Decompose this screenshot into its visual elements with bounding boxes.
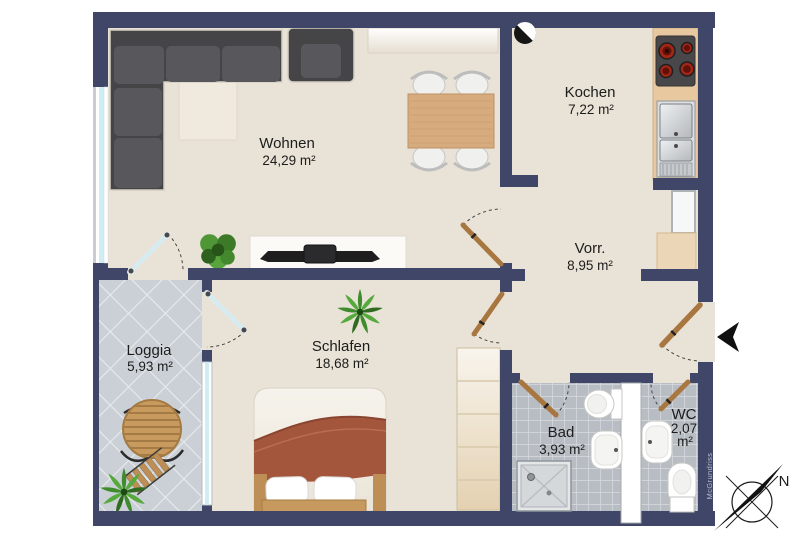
entrance-threshold <box>698 302 715 362</box>
hall-wardrobe <box>657 233 696 270</box>
room-area: 8,95 m² <box>567 258 613 273</box>
wall-loggia-outer <box>93 280 99 511</box>
loggia-table <box>123 400 181 458</box>
wall-loggia-schlafen-c <box>202 505 212 511</box>
installation-shaft <box>621 383 641 523</box>
wall-schlafen-bad <box>500 350 512 511</box>
room-name: Kochen <box>565 84 616 101</box>
toilet-tank <box>670 497 694 512</box>
window-schlafen-loggia <box>202 362 212 505</box>
floor-plan: N McGrundriss Wohnen 24,29 m² Kochen 7,2… <box>0 0 800 533</box>
shower <box>517 461 571 511</box>
armchair <box>288 28 354 82</box>
wall-wohnen-loggia <box>108 268 128 280</box>
wall-schlafen-vorr-top <box>500 263 512 292</box>
bed <box>254 388 386 512</box>
room-area: 7,22 m² <box>568 102 614 117</box>
wall-loggia-schlafen-b <box>202 350 212 362</box>
kitchen-counter <box>653 28 698 180</box>
room-name: Wohnen <box>259 135 315 152</box>
room-label-kochen: Kochen 7,22 m² <box>565 84 616 117</box>
floor-plan-drawing: N McGrundriss Wohnen 24,29 m² Kochen 7,2… <box>0 0 800 533</box>
watermark: McGrundriss <box>705 453 714 500</box>
compass-needle <box>714 464 783 531</box>
room-name: Bad <box>548 424 575 441</box>
entrance-arrow-icon <box>717 322 739 352</box>
bed-side <box>373 474 386 511</box>
room-name: Vorr. <box>575 240 606 257</box>
wall-left-upper <box>93 12 108 87</box>
wall-wohnen-kochen <box>500 28 512 187</box>
rug <box>179 82 237 140</box>
room-label-loggia: Loggia 5,93 m² <box>126 342 173 374</box>
compass-north-label: N <box>779 473 790 490</box>
wall-left-lower <box>93 263 108 280</box>
wall-niche-bottom <box>641 269 698 281</box>
room-area: 24,29 m² <box>262 153 316 168</box>
room-label-wohnen: Wohnen 24,29 m² <box>259 135 316 168</box>
compass-icon: N <box>714 464 789 531</box>
dining-table <box>408 94 494 148</box>
wall-top <box>93 12 715 28</box>
wall-junction-stub <box>512 269 525 281</box>
room-area: 3,93 m² <box>539 442 585 457</box>
window-left <box>93 87 108 263</box>
room-name: Schlafen <box>312 338 370 355</box>
wall-kochen-niche <box>653 178 698 190</box>
kitchen-sink <box>657 101 695 177</box>
wall-bad-b <box>570 373 653 383</box>
round-wall-marker-icon <box>514 22 536 44</box>
wall-right-upper <box>698 12 713 302</box>
room-area-unit: m² <box>677 434 693 449</box>
room-name: Loggia <box>126 342 172 359</box>
sideboard <box>368 28 498 53</box>
tv-lowboard <box>250 236 406 269</box>
bedroom-wardrobe <box>457 348 500 510</box>
stove <box>656 36 695 86</box>
room-area: 18,68 m² <box>315 356 369 371</box>
wall-wc-a <box>690 373 705 383</box>
wall-kochen-stub <box>512 175 538 187</box>
wall-wohnen-schlafen <box>188 268 502 280</box>
hall-mirror <box>672 191 695 233</box>
bed-bench <box>262 500 366 512</box>
room-label-schlafen: Schlafen 18,68 m² <box>312 338 370 371</box>
room-area: 5,93 m² <box>127 359 173 374</box>
